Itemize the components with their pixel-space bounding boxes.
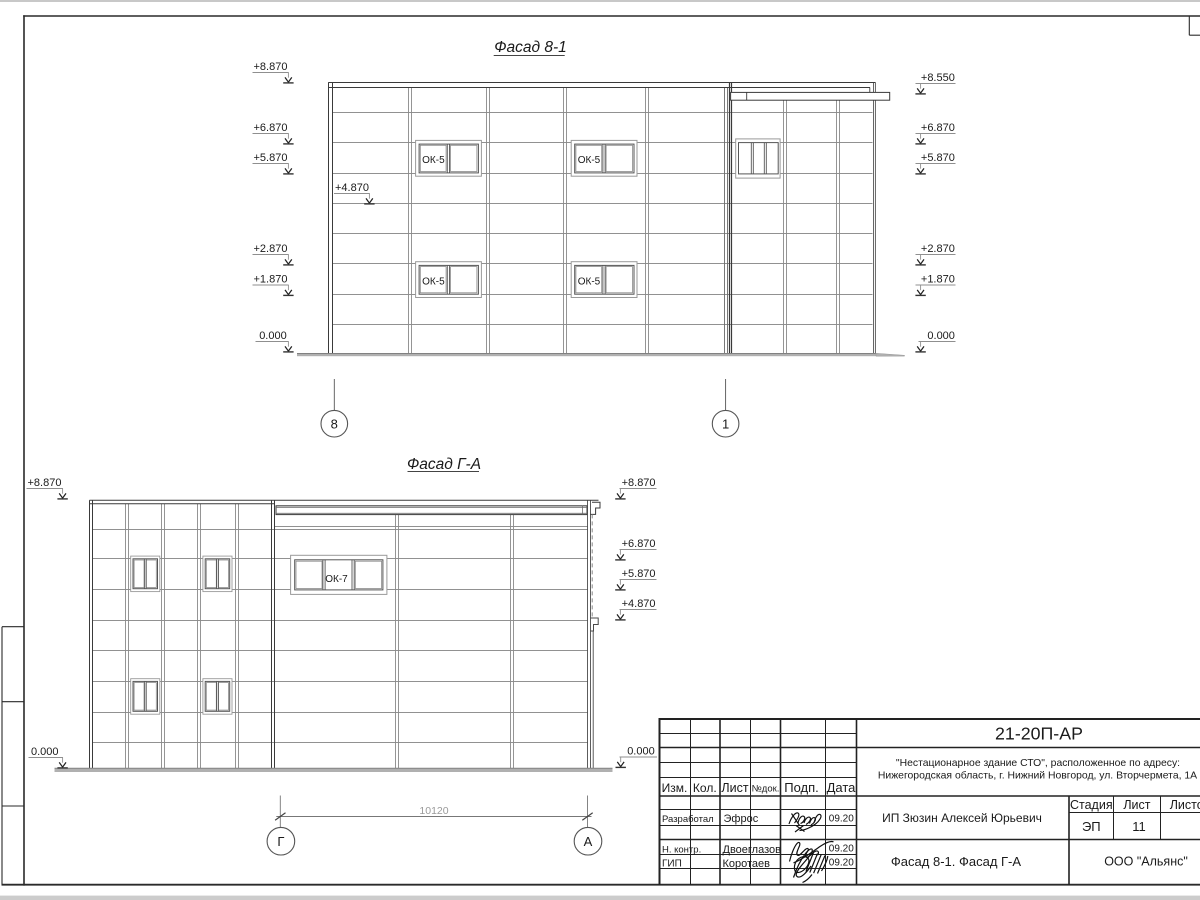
svg-text:0.000: 0.000: [31, 746, 59, 758]
svg-text:Стадия: Стадия: [1070, 798, 1113, 812]
svg-text:+6.870: +6.870: [622, 538, 656, 550]
svg-text:№док.: №док.: [752, 783, 780, 794]
svg-text:ОК-5: ОК-5: [422, 277, 445, 288]
svg-text:"Нестационарное здание СТО", р: "Нестационарное здание СТО", расположенн…: [896, 758, 1180, 769]
svg-text:Двоеглазов: Двоеглазов: [723, 844, 782, 856]
svg-text:0.000: 0.000: [627, 745, 655, 757]
svg-text:8: 8: [331, 417, 338, 432]
svg-text:10120: 10120: [419, 805, 448, 817]
svg-text:0.000: 0.000: [259, 330, 287, 342]
svg-text:+2.870: +2.870: [921, 243, 955, 255]
svg-text:ЭП: ЭП: [1082, 819, 1101, 834]
svg-text:Листов: Листов: [1170, 798, 1200, 812]
svg-text:А: А: [584, 834, 593, 849]
svg-text:09.20: 09.20: [829, 858, 854, 869]
svg-text:+6.870: +6.870: [921, 122, 955, 134]
svg-text:Фасад 8-1. Фасад Г-А: Фасад 8-1. Фасад Г-А: [891, 854, 1021, 869]
svg-text:+6.870: +6.870: [254, 122, 288, 134]
svg-text:11: 11: [1132, 819, 1146, 834]
svg-text:Фасад 8-1: Фасад 8-1: [494, 39, 567, 56]
svg-text:+8.550: +8.550: [921, 72, 955, 84]
svg-text:+4.870: +4.870: [622, 598, 656, 610]
svg-text:Дата: Дата: [827, 780, 857, 795]
svg-text:09.20: 09.20: [829, 814, 854, 825]
svg-text:Разработал: Разработал: [662, 814, 714, 825]
svg-text:+2.870: +2.870: [254, 243, 288, 255]
svg-text:ООО "Альянс": ООО "Альянс": [1104, 855, 1188, 869]
svg-text:ИП Зюзин Алексей Юрьевич: ИП Зюзин Алексей Юрьевич: [882, 811, 1042, 825]
svg-text:+1.870: +1.870: [254, 273, 288, 285]
svg-text:ОК-5: ОК-5: [578, 155, 601, 166]
svg-text:Г: Г: [277, 834, 284, 849]
svg-text:Лист: Лист: [721, 781, 748, 795]
svg-text:0.000: 0.000: [927, 330, 955, 342]
svg-text:+5.870: +5.870: [921, 152, 955, 164]
svg-text:ОК-5: ОК-5: [422, 155, 445, 166]
svg-text:ОК-5: ОК-5: [578, 277, 601, 288]
svg-text:Эфрос: Эфрос: [724, 813, 759, 825]
svg-text:ГИП: ГИП: [662, 859, 682, 870]
svg-text:Подп.: Подп.: [784, 780, 819, 795]
svg-text:Изм.: Изм.: [662, 781, 688, 795]
svg-text:ОК-7: ОК-7: [325, 574, 348, 585]
svg-text:09.20: 09.20: [829, 844, 854, 855]
svg-text:Нижегородская область, г. Нижн: Нижегородская область, г. Нижний Новгоро…: [878, 770, 1197, 782]
svg-text:Кол.: Кол.: [693, 781, 717, 795]
svg-text:Н. контр.: Н. контр.: [662, 845, 701, 856]
svg-text:+8.870: +8.870: [254, 61, 288, 73]
svg-text:Фасад Г-А: Фасад Г-А: [407, 456, 481, 473]
svg-text:+8.870: +8.870: [622, 477, 656, 489]
svg-text:+5.870: +5.870: [622, 568, 656, 580]
svg-text:+4.870: +4.870: [335, 182, 369, 194]
svg-text:+5.870: +5.870: [254, 152, 288, 164]
svg-text:1: 1: [722, 417, 729, 432]
svg-text:+1.870: +1.870: [921, 273, 955, 285]
svg-text:Коротаев: Коротаев: [723, 858, 771, 870]
svg-text:Лист: Лист: [1123, 798, 1150, 812]
svg-text:21-20П-АР: 21-20П-АР: [995, 724, 1083, 744]
svg-text:+8.870: +8.870: [28, 477, 62, 489]
